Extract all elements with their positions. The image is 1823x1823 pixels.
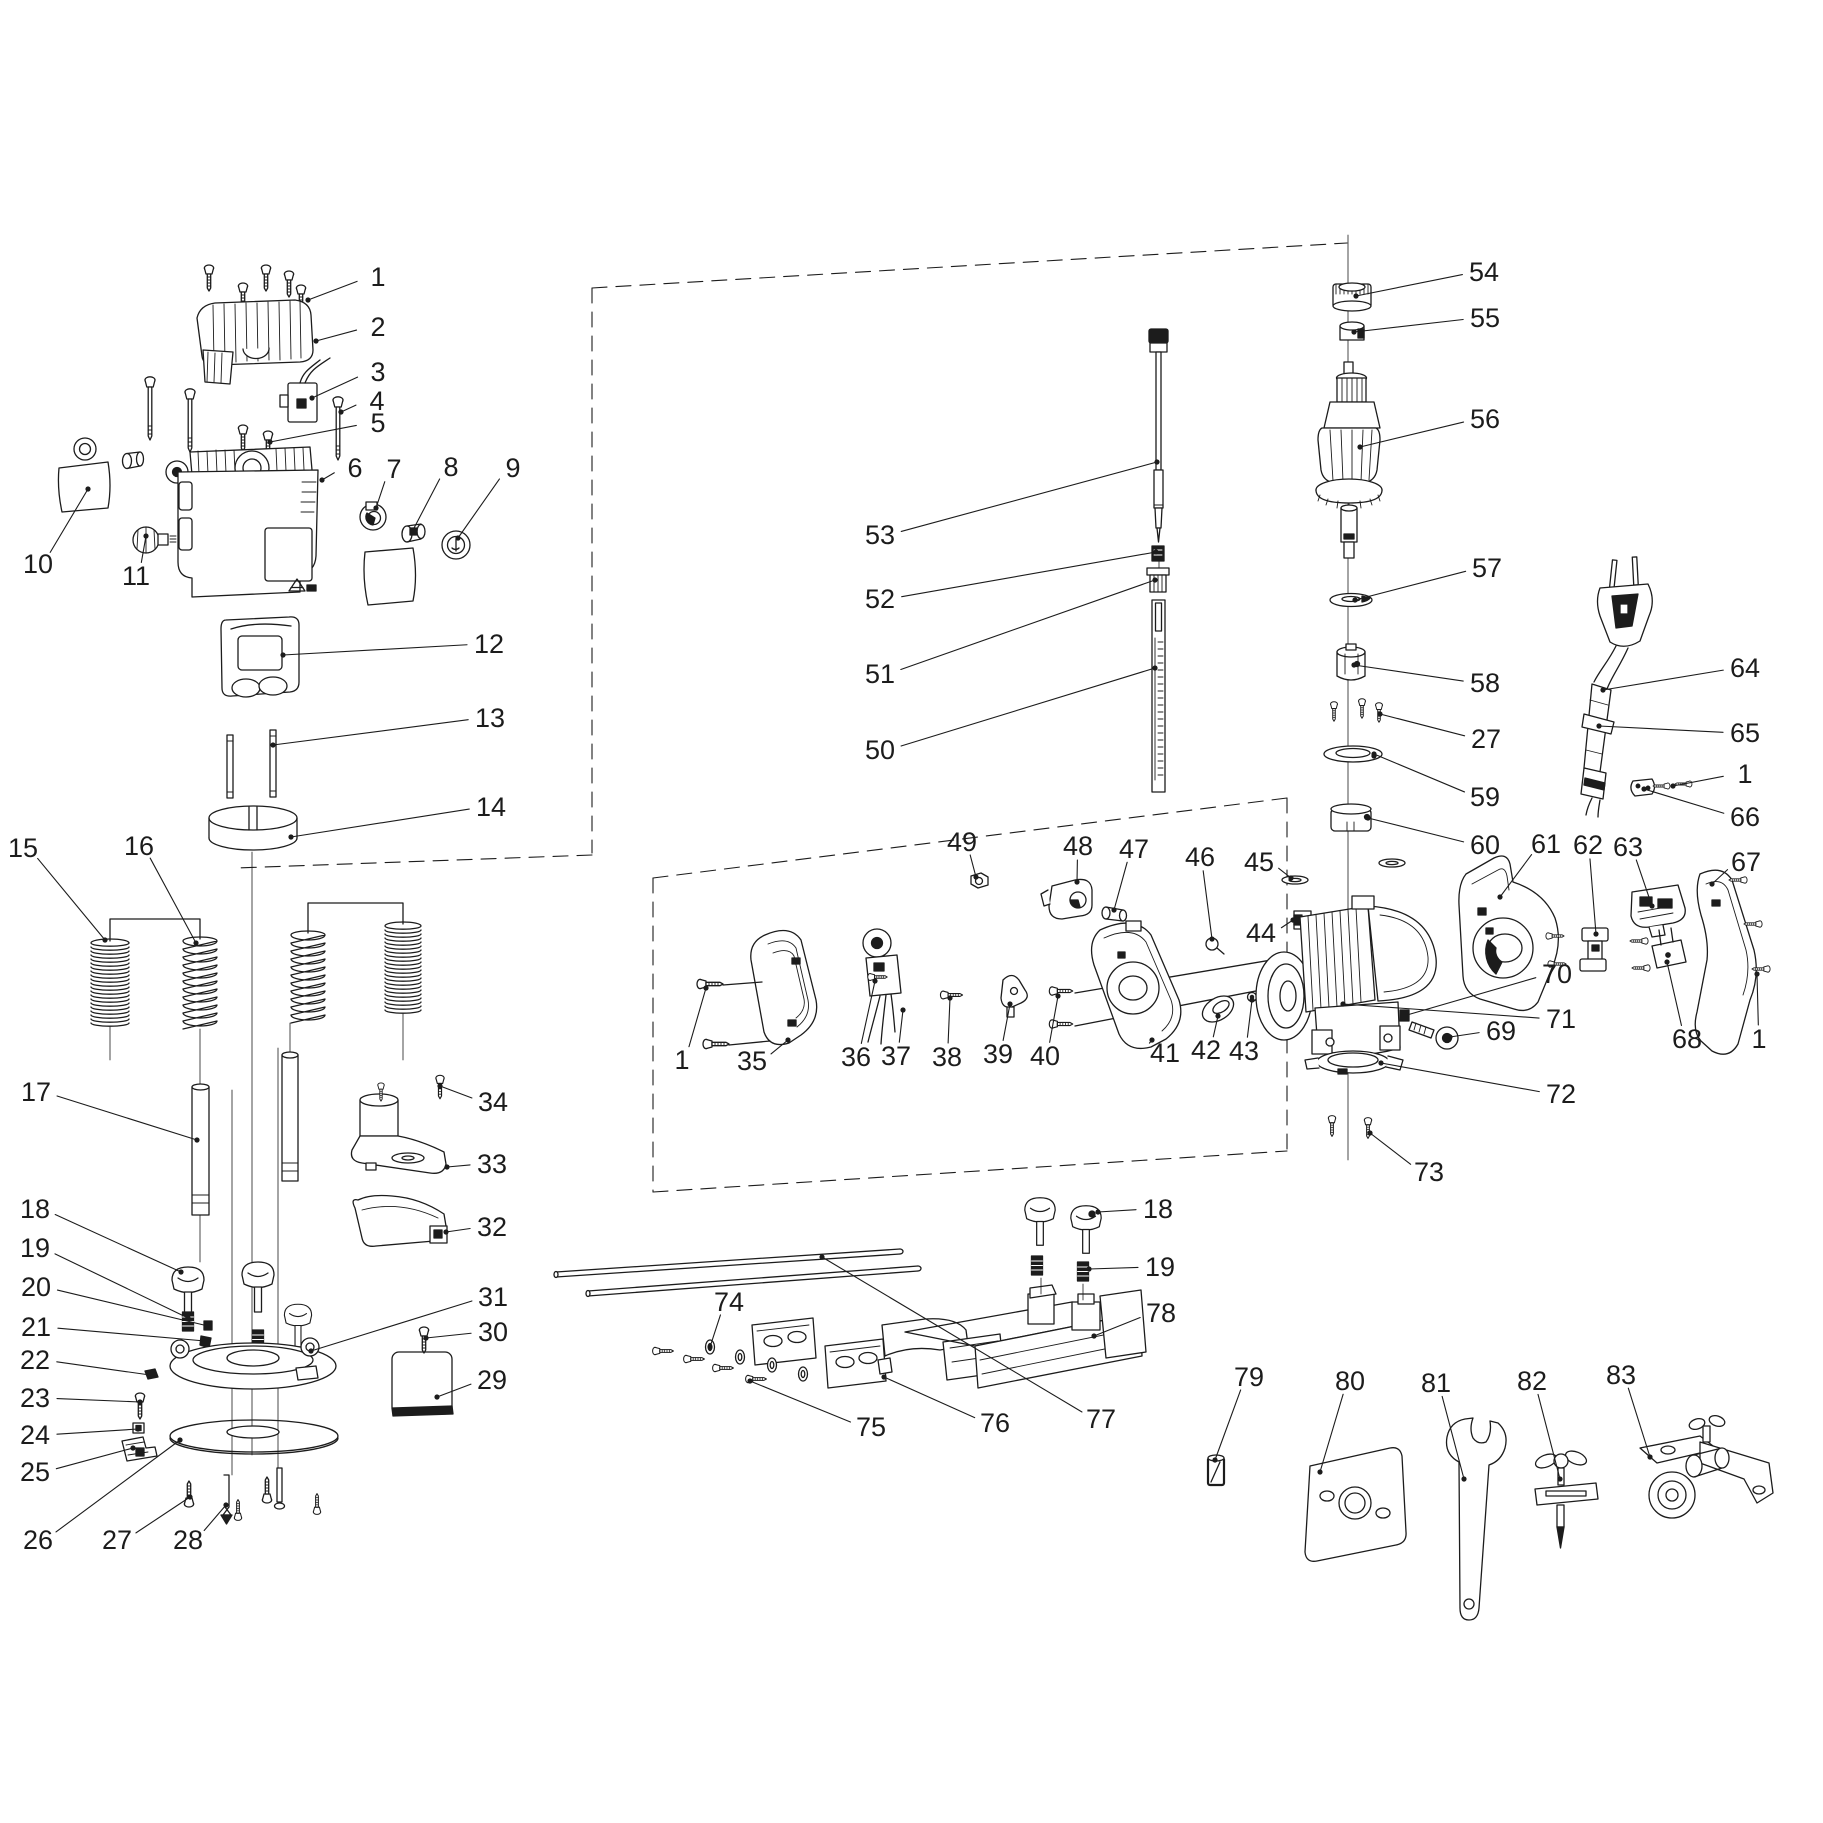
part-27-housing-screws <box>1331 699 1383 723</box>
leader-line-24 <box>57 1429 138 1434</box>
leader-dot-4 <box>338 409 343 414</box>
base-screws-below <box>184 1468 320 1524</box>
leader-line-31 <box>311 1301 472 1351</box>
part-label-44-44: 44 <box>1246 918 1276 948</box>
leader-line-33 <box>447 1165 470 1167</box>
leader-dot-8 <box>410 527 415 532</box>
part-label-37-37: 37 <box>881 1041 911 1071</box>
leader-dot-63 <box>1649 903 1654 908</box>
leader-dot-1 <box>305 297 310 302</box>
part-51-knurled-nut <box>1147 568 1169 592</box>
part-label-1-34: 1 <box>674 1045 689 1075</box>
leader-line-32 <box>446 1229 470 1232</box>
leader-line-68 <box>1667 962 1681 1025</box>
leader-line-38 <box>948 998 950 1043</box>
leader-dot-80 <box>1317 1469 1322 1474</box>
leader-dot-10 <box>85 486 90 491</box>
part-label-19-18: 19 <box>20 1233 50 1263</box>
part-label-6-5: 6 <box>347 453 362 483</box>
leader-dot-11 <box>143 533 148 538</box>
leader-line-55 <box>1354 319 1463 332</box>
part-3-switch-module <box>280 358 330 422</box>
part-label-12-11: 12 <box>474 629 504 659</box>
part-8-bushing <box>402 524 425 542</box>
part-label-62-63: 62 <box>1573 830 1603 860</box>
part-label-1-0: 1 <box>370 262 385 292</box>
leader-line-23 <box>57 1399 140 1402</box>
part-label-70-73: 70 <box>1542 959 1572 989</box>
part-64-plug <box>1598 557 1653 646</box>
leader-dot-14 <box>288 834 293 839</box>
leader-line-65 <box>1599 726 1723 732</box>
leader-dot-33 <box>444 1164 449 1169</box>
leader-dot-13 <box>270 742 275 747</box>
leader-dot-64 <box>1600 687 1605 692</box>
part-35-handle-cover-left <box>751 931 817 1045</box>
part-label-47-47: 47 <box>1119 834 1149 864</box>
leader-line-47 <box>1114 862 1127 910</box>
part-label-43-43: 43 <box>1229 1036 1259 1066</box>
leader-dot-37 <box>900 1007 905 1012</box>
leader-dot-83 <box>1647 1454 1652 1459</box>
part-56-armature <box>1316 362 1382 558</box>
leader-line-58 <box>1354 665 1463 681</box>
leader-dot-53 <box>1154 459 1159 464</box>
part-label-10-9: 10 <box>23 549 53 579</box>
leader-line-59 <box>1374 754 1464 792</box>
part-57-washer <box>1330 594 1372 607</box>
leader-line-43 <box>1247 1000 1252 1037</box>
leader-dot-1 <box>1754 971 1759 976</box>
leader-line-3 <box>312 377 358 398</box>
leader-dot-27 <box>187 1494 192 1499</box>
part-58-spindle-nut <box>1337 644 1365 680</box>
part-6-motor-body <box>178 447 318 597</box>
part-label-78-81: 78 <box>1146 1298 1176 1328</box>
part-label-74-77: 74 <box>714 1287 744 1317</box>
part-label-73-76: 73 <box>1414 1157 1444 1187</box>
part-41-handle-half <box>1092 921 1181 1048</box>
part-label-15-14: 15 <box>8 833 38 863</box>
leader-line-26 <box>56 1440 180 1532</box>
leader-dot-52 <box>1153 549 1158 554</box>
leader-dot-34 <box>437 1083 442 1088</box>
leader-dot-75 <box>747 1378 752 1383</box>
part-label-59-60: 59 <box>1470 782 1500 812</box>
coil-spring-2 <box>183 937 217 1029</box>
part-11-knob <box>133 527 176 553</box>
leader-dot-57 <box>1352 597 1357 602</box>
leader-line-1 <box>308 281 357 300</box>
part-label-1-71: 1 <box>1751 1024 1766 1054</box>
part-50-scale-rod <box>1152 600 1165 792</box>
leader-dot-56 <box>1357 444 1362 449</box>
leader-dot-46 <box>1209 936 1214 941</box>
part-label-79-84: 79 <box>1234 1362 1264 1392</box>
leader-dot-29 <box>434 1394 439 1399</box>
part-7-adjust-knob <box>360 502 386 530</box>
part-label-68-70: 68 <box>1672 1024 1702 1054</box>
part-73-screws <box>1328 1116 1371 1139</box>
part-65-cord-guard <box>1581 646 1628 817</box>
leader-line-64 <box>1603 670 1723 690</box>
part-63-switch-holder <box>1631 885 1685 937</box>
part-54-bearing <box>1333 283 1371 311</box>
leader-dot-36 <box>872 978 877 983</box>
leader-dot-81 <box>1461 1476 1466 1481</box>
part-label-24-23: 24 <box>20 1420 50 1450</box>
leader-dot-21 <box>202 1338 207 1343</box>
dashed-reference-boxes <box>237 243 1347 1192</box>
leader-dot-17 <box>194 1137 199 1142</box>
part-label-30-29: 30 <box>478 1317 508 1347</box>
part-label-48-48: 48 <box>1063 831 1093 861</box>
leader-dot-20 <box>205 1323 210 1328</box>
leader-dot-74 <box>707 1344 712 1349</box>
part-60-clamp-collar <box>1331 804 1371 831</box>
leader-dot-7 <box>373 505 378 510</box>
part-53-depth-rod <box>1149 329 1168 542</box>
leader-dot-47 <box>1111 907 1116 912</box>
leader-dot-35 <box>785 1037 790 1042</box>
leader-dot-51 <box>1152 577 1157 582</box>
part-label-16-15: 16 <box>124 831 154 861</box>
leader-dot-6 <box>319 477 324 482</box>
part-label-5-4: 5 <box>370 408 385 438</box>
leader-line-27 <box>1380 714 1465 736</box>
leader-dot-2 <box>313 338 318 343</box>
part-12-field-coil <box>221 617 299 697</box>
part-83-roller-guide <box>1640 1414 1773 1518</box>
part-label-21-20: 21 <box>21 1312 51 1342</box>
leader-line-50 <box>901 668 1155 746</box>
part-label-18-17: 18 <box>20 1194 50 1224</box>
leader-dot-1 <box>1670 783 1675 788</box>
part-29-dust-shield <box>392 1352 453 1416</box>
leader-dot-31 <box>308 1348 313 1353</box>
leader-line-60 <box>1368 818 1464 842</box>
part-label-1-67: 1 <box>1737 759 1752 789</box>
part-label-14-13: 14 <box>476 792 506 822</box>
part-label-82-87: 82 <box>1517 1366 1547 1396</box>
leader-line-18 <box>1098 1210 1136 1212</box>
leader-line-54 <box>1356 275 1462 296</box>
leader-line-2 <box>316 330 357 341</box>
part-label-11-10: 11 <box>122 561 150 591</box>
leader-dot-18 <box>1095 1209 1100 1214</box>
part-18-fence-knobs <box>1025 1198 1101 1254</box>
part-label-54-54: 54 <box>1469 257 1499 287</box>
leader-dot-22 <box>147 1372 152 1377</box>
part-32-turret-base <box>353 1196 447 1247</box>
leader-dot-60 <box>1365 815 1370 820</box>
part-82-trammel-point <box>1534 1448 1598 1548</box>
leader-dot-25 <box>130 1445 135 1450</box>
part-22-26-base-casting <box>122 1338 336 1461</box>
part-19-fence-springs <box>1032 1256 1089 1281</box>
right-label-sheet <box>364 548 416 605</box>
part-label-33-32: 33 <box>477 1149 507 1179</box>
part-label-75-78: 75 <box>856 1412 886 1442</box>
part-48-latch <box>1041 879 1092 919</box>
part-15-16-springs <box>91 922 421 1029</box>
part-label-55-55: 55 <box>1470 303 1500 333</box>
leader-dot-26 <box>177 1437 182 1442</box>
leader-dot-19 <box>185 1315 190 1320</box>
leader-line-15 <box>38 858 105 940</box>
leader-dot-19 <box>1086 1266 1091 1271</box>
part-label-23-22: 23 <box>20 1383 50 1413</box>
part-label-18-82: 18 <box>1143 1194 1173 1224</box>
part-label-56-56: 56 <box>1470 404 1500 434</box>
part-17-columns <box>192 1052 298 1215</box>
coil-spring-4 <box>385 922 421 1013</box>
leader-line-46 <box>1203 871 1212 939</box>
part-66-cord-clamp <box>1631 779 1692 796</box>
leader-dot-78 <box>1091 1333 1096 1338</box>
part-39-lever <box>1001 976 1027 1018</box>
leader-dot-76 <box>881 1374 886 1379</box>
part-label-57-57: 57 <box>1472 553 1502 583</box>
part-label-26-25: 26 <box>23 1525 53 1555</box>
part-label-22-21: 22 <box>20 1345 50 1375</box>
leader-line-62 <box>1590 859 1596 934</box>
leader-line-83 <box>1628 1388 1650 1457</box>
leader-dot-38 <box>947 995 952 1000</box>
leader-dot-58 <box>1351 662 1356 667</box>
leader-line-49 <box>970 855 976 877</box>
leader-line-14 <box>291 809 469 837</box>
leader-dot-72 <box>1378 1060 1383 1065</box>
leader-line-13 <box>273 720 468 745</box>
leader-line-19 <box>1089 1267 1138 1269</box>
leader-line-57 <box>1355 571 1466 600</box>
part-label-13-12: 13 <box>475 703 505 733</box>
leader-line-30 <box>426 1333 471 1338</box>
leader-dot-48 <box>1074 879 1079 884</box>
leader-dot-1 <box>703 985 708 990</box>
leader-dot-42 <box>1215 1013 1220 1018</box>
part-label-25-24: 25 <box>20 1457 50 1487</box>
leader-dot-67 <box>1709 881 1714 886</box>
leader-line-1 <box>1757 974 1758 1025</box>
part-label-46-46: 46 <box>1185 842 1215 872</box>
part-label-38-38: 38 <box>932 1042 962 1072</box>
part-10-label-sheet <box>58 462 110 512</box>
leader-dot-44 <box>1290 917 1295 922</box>
leader-dot-12 <box>280 652 285 657</box>
part-label-51-51: 51 <box>865 659 895 689</box>
part-label-41-41: 41 <box>1150 1038 1180 1068</box>
coil-spring-1 <box>91 939 129 1026</box>
part-label-71-74: 71 <box>1546 1004 1576 1034</box>
part-label-31-30: 31 <box>478 1282 508 1312</box>
leader-line-36 <box>861 981 875 1043</box>
leader-line-52 <box>902 552 1156 597</box>
leader-dot-71 <box>1340 1001 1345 1006</box>
part-label-53-53: 53 <box>865 520 895 550</box>
leader-dot-77 <box>819 1254 824 1259</box>
leader-line-19 <box>55 1254 188 1318</box>
part-label-27-26: 27 <box>102 1525 132 1555</box>
leader-dot-59 <box>1371 751 1376 756</box>
leader-line-12 <box>283 645 467 655</box>
part-label-36-36: 36 <box>841 1042 871 1072</box>
part-label-80-85: 80 <box>1335 1366 1365 1396</box>
part-label-40-40: 40 <box>1030 1041 1060 1071</box>
part-26-subbase <box>170 1420 338 1454</box>
leader-dot-73 <box>1367 1130 1372 1135</box>
part-label-49-49: 49 <box>947 827 977 857</box>
part-label-3-2: 3 <box>370 357 385 387</box>
part-label-77-80: 77 <box>1086 1404 1116 1434</box>
part-label-67-69: 67 <box>1731 847 1761 877</box>
part-label-2-1: 2 <box>370 312 385 342</box>
leader-dot-5 <box>267 439 272 444</box>
part-label-45-45: 45 <box>1244 847 1274 877</box>
part-label-35-35: 35 <box>737 1046 767 1076</box>
part-label-83-88: 83 <box>1606 1360 1636 1390</box>
leader-dot-69 <box>1447 1034 1452 1039</box>
part-label-39-39: 39 <box>983 1039 1013 1069</box>
leader-dot-28 <box>223 1502 228 1507</box>
part-label-66-68: 66 <box>1730 802 1760 832</box>
part-label-50-50: 50 <box>865 735 895 765</box>
leader-dot-15 <box>102 937 107 942</box>
leader-dot-32 <box>443 1229 448 1234</box>
part-label-9-8: 9 <box>505 453 520 483</box>
part-80-template-guide <box>1305 1448 1406 1562</box>
diagram-page: 1234567891011121314151617181920212223242… <box>0 0 1823 1823</box>
spring-brackets <box>110 903 403 941</box>
part-18-clamp-knobs <box>172 1262 312 1347</box>
leader-dot-16 <box>193 940 198 945</box>
part-label-58-58: 58 <box>1470 668 1500 698</box>
leader-line-5 <box>270 425 356 442</box>
part-label-20-19: 20 <box>21 1272 51 1302</box>
leader-dot-43 <box>1249 997 1254 1002</box>
part-46-circlip <box>1206 938 1224 954</box>
part-label-76-79: 76 <box>980 1408 1010 1438</box>
leader-dot-70 <box>1404 1012 1409 1017</box>
part-label-63-64: 63 <box>1613 832 1643 862</box>
leader-dot-66 <box>1641 786 1646 791</box>
leader-dot-54 <box>1353 293 1358 298</box>
leader-line-1 <box>1673 776 1723 786</box>
leader-dot-61 <box>1497 894 1502 899</box>
part-label-72-75: 72 <box>1546 1079 1576 1109</box>
leader-dot-23 <box>137 1399 142 1404</box>
leader-line-34 <box>440 1086 472 1098</box>
part-75-76-fence-plates <box>752 1318 892 1388</box>
leader-line-8 <box>413 479 440 530</box>
leader-dot-18 <box>178 1269 183 1274</box>
exploded-parts-diagram: 1234567891011121314151617181920212223242… <box>0 0 1823 1823</box>
leader-dot-40 <box>1055 993 1060 998</box>
leader-line-74 <box>710 1315 720 1347</box>
part-13-guide-rods <box>227 730 276 798</box>
leader-dot-39 <box>1007 1001 1012 1006</box>
leader-dot-45 <box>1288 875 1293 880</box>
leader-dot-9 <box>455 535 460 540</box>
part-label-27-59: 27 <box>1471 724 1501 754</box>
part-45-washers <box>1282 859 1405 884</box>
part-label-42-42: 42 <box>1191 1035 1221 1065</box>
leader-line-53 <box>901 462 1157 531</box>
leader-dot-30 <box>423 1335 428 1340</box>
leader-line-25 <box>56 1448 133 1469</box>
leader-dot-62 <box>1593 931 1598 936</box>
leader-line-1 <box>689 988 706 1047</box>
leader-line-17 <box>57 1096 197 1140</box>
part-label-69-72: 69 <box>1486 1016 1516 1046</box>
leader-line-37 <box>899 1010 903 1042</box>
part-label-29-28: 29 <box>477 1365 507 1395</box>
part-33-turret-stop <box>351 1094 446 1173</box>
part-label-65-66: 65 <box>1730 718 1760 748</box>
leader-dot-27 <box>1377 711 1382 716</box>
part-label-34-33: 34 <box>478 1087 508 1117</box>
leader-line-51 <box>901 580 1155 669</box>
part-49-nut <box>971 873 988 888</box>
part-label-61-62: 61 <box>1531 829 1561 859</box>
part-label-19-83: 19 <box>1145 1252 1175 1282</box>
leader-dot-68 <box>1664 959 1669 964</box>
part-label-81-86: 81 <box>1421 1368 1451 1398</box>
leader-dot-79 <box>1212 1457 1217 1462</box>
leader-line-73 <box>1370 1133 1411 1164</box>
coil-spring-3 <box>291 931 325 1023</box>
leader-dot-50 <box>1152 665 1157 670</box>
part-label-8-7: 8 <box>443 452 458 482</box>
part-label-28-27: 28 <box>173 1525 203 1555</box>
part-label-7-6: 7 <box>386 454 401 484</box>
part-9-cap <box>442 531 470 559</box>
leader-dot-24 <box>135 1426 140 1431</box>
leader-dot-55 <box>1351 329 1356 334</box>
leader-line-16 <box>150 858 196 943</box>
leader-line-40 <box>1050 996 1058 1042</box>
leader-dot-49 <box>973 874 978 879</box>
part-2-motor-top-cap <box>197 300 313 384</box>
part-14-clamp-ring <box>209 806 297 850</box>
part-label-64-65: 64 <box>1730 653 1760 683</box>
leader-line-79 <box>1215 1390 1241 1460</box>
leader-line-66 <box>1644 789 1724 813</box>
part-36-37-switch-assembly <box>863 929 901 1044</box>
leader-line-7 <box>376 482 385 508</box>
leader-line-76 <box>884 1377 975 1418</box>
leader-dot-82 <box>1557 1476 1562 1481</box>
leader-dot-65 <box>1596 723 1601 728</box>
leader-line-9 <box>458 479 499 538</box>
part-label-60-61: 60 <box>1470 830 1500 860</box>
leader-line-72 <box>1381 1063 1539 1092</box>
leader-dot-3 <box>309 395 314 400</box>
part-label-32-31: 32 <box>477 1212 507 1242</box>
leader-line-22 <box>57 1362 150 1375</box>
part-label-52-52: 52 <box>865 584 895 614</box>
part-label-17-16: 17 <box>21 1077 51 1107</box>
